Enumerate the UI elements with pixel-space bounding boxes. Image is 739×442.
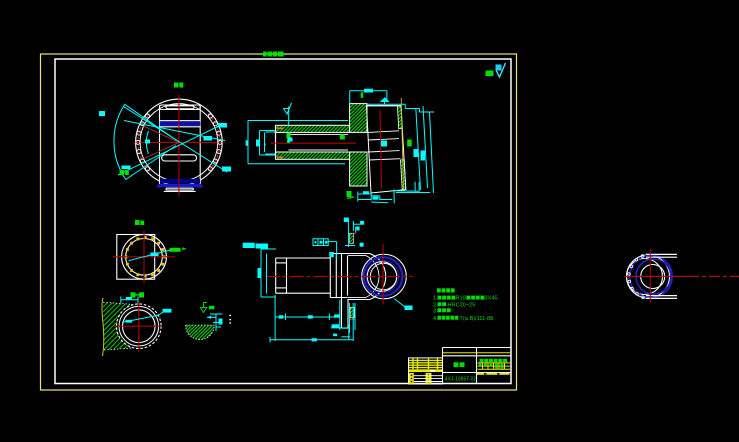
svg-text:1.: 1. [433, 296, 438, 302]
svg-text:3.: 3. [433, 308, 438, 314]
svg-text:R10,: R10, [456, 296, 468, 302]
svg-text:3X45: 3X45 [485, 296, 498, 302]
svg-text:4XJ-10597-01: 4XJ-10597-01 [445, 377, 477, 383]
svg-text:4.: 4. [433, 316, 438, 322]
svg-text:HRC20~25: HRC20~25 [448, 302, 476, 308]
svg-text:T(a.B)/111-88: T(a.B)/111-88 [460, 316, 494, 322]
svg-text:2.: 2. [433, 302, 438, 308]
